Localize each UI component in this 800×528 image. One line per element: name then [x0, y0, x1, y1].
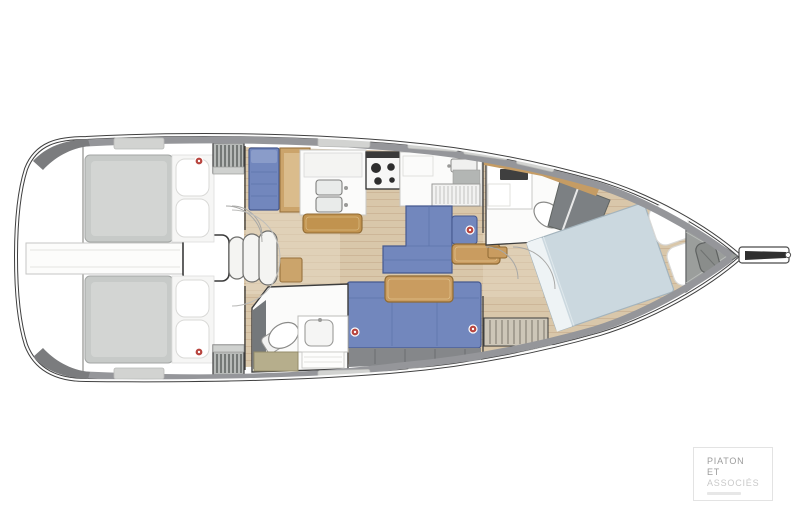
fridge-top	[453, 170, 480, 184]
watermark-box: PIATON ET ASSOCIÉS	[693, 447, 773, 501]
watermark-line-1: PIATON	[707, 456, 772, 467]
stove	[366, 152, 400, 189]
port-settee	[249, 148, 279, 210]
sofa-table	[385, 276, 453, 302]
watermark-line-3: ASSOCIÉS	[707, 478, 772, 489]
aft-head	[252, 284, 348, 372]
floor-plan-drawing	[0, 0, 800, 528]
galley-wood-rail	[303, 214, 362, 233]
bowsprit	[739, 247, 791, 263]
wood-locker-aft	[280, 258, 302, 282]
hanging-locker	[213, 345, 244, 375]
bench	[254, 352, 298, 371]
hanging-locker	[213, 143, 244, 174]
starboard-sofa	[347, 276, 481, 367]
plate-rack	[432, 184, 480, 206]
watermark-line-2: ET	[707, 467, 772, 478]
yacht-floor-plan: PIATON ET ASSOCIÉS	[0, 0, 800, 528]
vanity-sink	[298, 316, 348, 368]
companionway-steps	[229, 231, 277, 285]
watermark-tagline	[707, 492, 741, 495]
